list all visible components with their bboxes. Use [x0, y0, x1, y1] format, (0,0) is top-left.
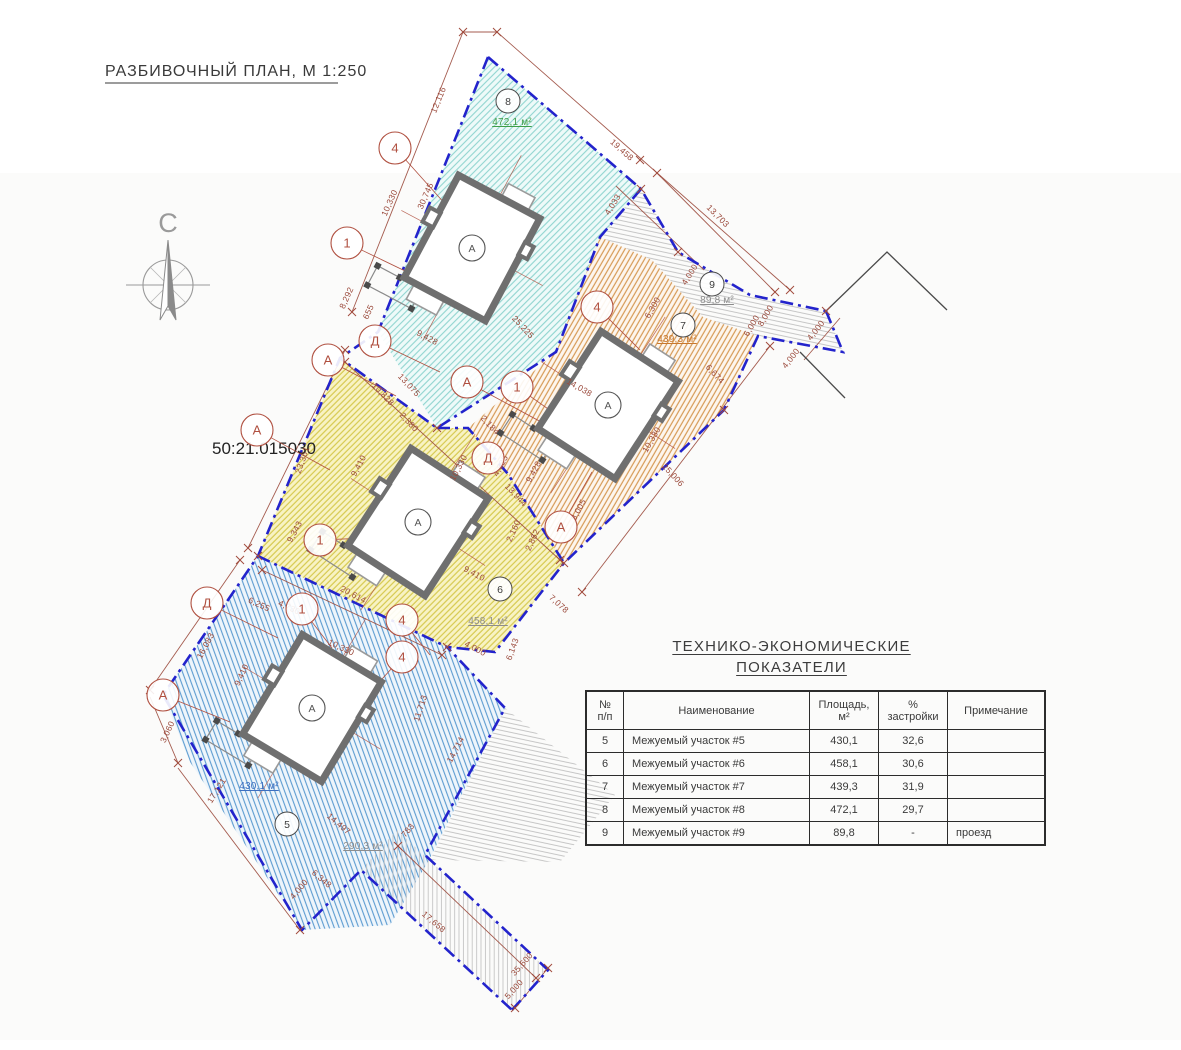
axis-marker-label: Д: [484, 451, 493, 466]
axis-marker-label: А: [463, 375, 472, 390]
axis-marker-label: 1: [316, 533, 323, 548]
axis-marker-4: 4: [379, 132, 411, 164]
teo-table-cell: 31,9: [879, 776, 948, 799]
teo-table-cell: -: [879, 822, 948, 846]
teo-table-cell: 7: [586, 776, 624, 799]
axis-marker-А: А: [451, 366, 483, 398]
axis-marker-1: 1: [331, 227, 363, 259]
axis-marker-label: 1: [298, 602, 305, 617]
teo-table-cell: 472,1: [810, 799, 879, 822]
teo-table-cell: Межуемый участок #9: [624, 822, 810, 846]
parcel-marker-8: 8: [496, 89, 520, 113]
axis-marker-А: А: [241, 414, 273, 446]
axis-marker-1: 1: [286, 593, 318, 625]
teo-table-cell: 9: [586, 822, 624, 846]
teo-table-cell: проезд: [948, 822, 1046, 846]
axis-marker-Д: Д: [359, 325, 391, 357]
axis-marker-label: 4: [398, 650, 405, 665]
axis-marker-4: 4: [386, 604, 418, 636]
teo-table-cell: 6: [586, 753, 624, 776]
teo-table: №п/пНаименованиеПлощадь,м²%застройкиПрим…: [585, 690, 1046, 846]
teo-table-cell: [948, 730, 1046, 753]
teo-table-cell: 5: [586, 730, 624, 753]
teo-table-row: 5Межуемый участок #5430,132,6: [586, 730, 1045, 753]
parcel-area-label: 89,8 м²: [700, 295, 734, 306]
axis-marker-Д: Д: [472, 442, 504, 474]
axis-marker-label: 4: [593, 300, 600, 315]
teo-table-row: 6Межуемый участок #6458,130,6: [586, 753, 1045, 776]
teo-title-line1: ТЕХНИКО-ЭКОНОМИЧЕСКИЕ: [672, 638, 910, 655]
teo-table-cell: [948, 753, 1046, 776]
axis-marker-1: 1: [501, 371, 533, 403]
teo-column-header: №п/п: [586, 691, 624, 730]
teo-table-block: ТЕХНИКО-ЭКОНОМИЧЕСКИЕ ПОКАЗАТЕЛИ №п/пНаи…: [585, 636, 998, 846]
teo-table-row: 7Межуемый участок #7439,331,9: [586, 776, 1045, 799]
teo-column-header: %застройки: [879, 691, 948, 730]
dimension-label: 12,116: [428, 85, 447, 114]
axis-marker-1: 1: [304, 524, 336, 556]
building-axis-label: А: [459, 235, 485, 261]
teo-table-cell: Межуемый участок #8: [624, 799, 810, 822]
page-title: РАЗБИВОЧНЫЙ ПЛАН, М 1:250: [105, 61, 367, 80]
building-letter: А: [604, 400, 611, 412]
teo-title-line2: ПОКАЗАТЕЛИ: [736, 659, 847, 676]
teo-table-cell: Межуемый участок #6: [624, 753, 810, 776]
parcel-marker-6: 6: [488, 577, 512, 601]
axis-marker-4: 4: [581, 291, 613, 323]
axis-marker-label: Д: [371, 334, 380, 349]
teo-column-header: Примечание: [948, 691, 1046, 730]
building-letter: А: [414, 517, 421, 529]
plan-drawing: С РАЗБИВОЧНЫЙ ПЛАН, М 1:250 50:21.015030…: [0, 0, 1181, 1050]
axis-marker-А: А: [545, 511, 577, 543]
parcel-area-label: 458,1 м²: [468, 616, 508, 627]
teo-table-cell: 30,6: [879, 753, 948, 776]
parcel-marker-9: 9: [700, 272, 724, 296]
teo-table-cell: Межуемый участок #7: [624, 776, 810, 799]
building-letter: А: [468, 243, 475, 255]
axis-marker-А: А: [312, 344, 344, 376]
building-axis-label: А: [299, 695, 325, 721]
axis-marker-label: А: [557, 520, 566, 535]
axis-marker-label: 1: [343, 236, 350, 251]
axis-marker-label: А: [159, 688, 168, 703]
parcel-area-label: 472,1 м²: [492, 117, 532, 128]
teo-table-cell: 29,7: [879, 799, 948, 822]
teo-table-cell: 458,1: [810, 753, 879, 776]
dimension-label: 19,458: [608, 137, 635, 163]
teo-table-title: ТЕХНИКО-ЭКОНОМИЧЕСКИЕ ПОКАЗАТЕЛИ: [585, 636, 998, 678]
building-axis-label: А: [595, 392, 621, 418]
axis-marker-label: 1: [513, 380, 520, 395]
axis-marker-label: Д: [203, 596, 212, 611]
axis-marker-label: А: [253, 423, 262, 438]
parcel-marker-label: 8: [505, 96, 511, 108]
parcel-area-label: 430,1 м²: [239, 781, 279, 792]
north-label: С: [158, 208, 178, 238]
parcel-marker-7: 7: [671, 313, 695, 337]
teo-column-header: Наименование: [624, 691, 810, 730]
teo-table-cell: 439,3: [810, 776, 879, 799]
teo-table-cell: 89,8: [810, 822, 879, 846]
teo-table-cell: 8: [586, 799, 624, 822]
teo-table-cell: [948, 799, 1046, 822]
axis-marker-label: 4: [398, 613, 405, 628]
teo-column-header: Площадь,м²: [810, 691, 879, 730]
parcel-marker-label: 6: [497, 584, 503, 596]
teo-table-row: 8Межуемый участок #8472,129,7: [586, 799, 1045, 822]
parcel-marker-5: 5: [275, 812, 299, 836]
teo-table-cell: 430,1: [810, 730, 879, 753]
parcel-area-label: 290,3 м²: [343, 841, 383, 852]
teo-table-cell: Межуемый участок #5: [624, 730, 810, 753]
axis-marker-4: 4: [386, 641, 418, 673]
site-plan-sheet: С РАЗБИВОЧНЫЙ ПЛАН, М 1:250 50:21.015030…: [0, 0, 1181, 1050]
parcel-marker-label: 5: [284, 819, 290, 831]
axis-marker-label: А: [324, 353, 333, 368]
axis-marker-А: А: [147, 679, 179, 711]
teo-table-cell: 32,6: [879, 730, 948, 753]
building-axis-label: А: [405, 509, 431, 535]
axis-marker-label: 4: [391, 141, 398, 156]
teo-table-cell: [948, 776, 1046, 799]
axis-marker-Д: Д: [191, 587, 223, 619]
parcel-marker-label: 9: [709, 279, 715, 291]
teo-table-row: 9Межуемый участок #989,8-проезд: [586, 822, 1045, 846]
building-letter: А: [308, 703, 315, 715]
parcel-marker-label: 7: [680, 320, 686, 332]
